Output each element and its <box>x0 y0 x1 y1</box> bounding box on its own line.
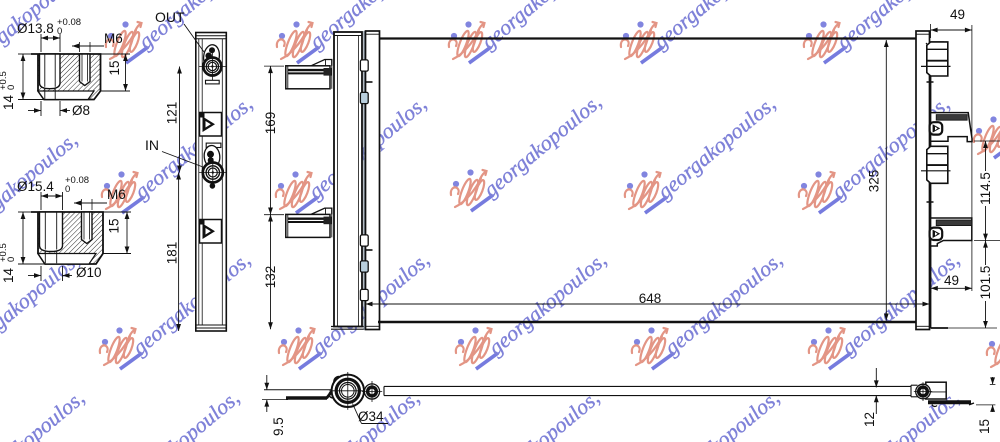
svg-text:0: 0 <box>57 26 62 37</box>
svg-text:12: 12 <box>862 412 877 427</box>
svg-text:121: 121 <box>165 102 180 125</box>
svg-text:648: 648 <box>639 291 662 306</box>
svg-text:325: 325 <box>867 170 882 193</box>
svg-text:M6: M6 <box>104 31 123 46</box>
svg-text:49: 49 <box>944 273 959 288</box>
svg-text:M6: M6 <box>107 187 126 202</box>
svg-text:0: 0 <box>6 85 17 90</box>
svg-text:15: 15 <box>107 60 122 75</box>
svg-text:Ø13.8: Ø13.8 <box>17 21 54 36</box>
svg-text:101.5: 101.5 <box>978 266 993 300</box>
svg-text:0: 0 <box>65 184 70 195</box>
svg-text:9.5: 9.5 <box>271 417 286 436</box>
svg-text:IN: IN <box>145 137 159 153</box>
svg-text:169: 169 <box>263 112 278 135</box>
svg-text:OUT: OUT <box>155 9 185 25</box>
svg-text:15: 15 <box>107 218 122 233</box>
svg-text:Ø10: Ø10 <box>76 265 102 280</box>
svg-text:132: 132 <box>263 266 278 289</box>
svg-text:114.5: 114.5 <box>978 172 993 205</box>
svg-text:14: 14 <box>1 267 16 283</box>
svg-text:14: 14 <box>1 94 16 110</box>
svg-text:Ø8: Ø8 <box>72 103 90 118</box>
svg-text:49: 49 <box>950 7 965 22</box>
svg-text:Ø34: Ø34 <box>358 409 384 424</box>
svg-text:0: 0 <box>6 257 17 262</box>
svg-text:15: 15 <box>977 419 992 434</box>
svg-text:Ø15.4: Ø15.4 <box>17 179 54 194</box>
svg-text:181: 181 <box>165 242 180 265</box>
